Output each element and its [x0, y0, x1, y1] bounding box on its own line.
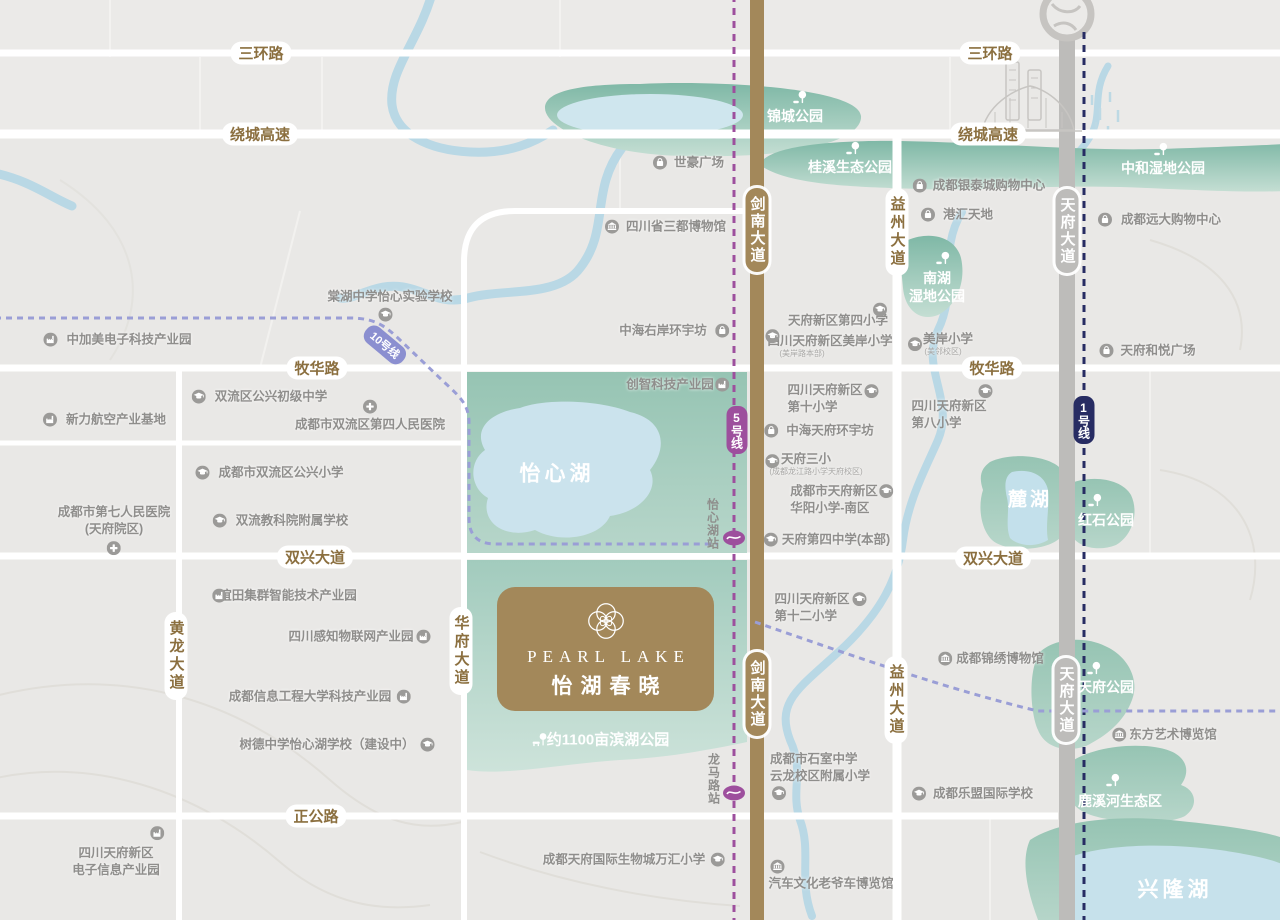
pearl-lake-flower-icon	[583, 598, 629, 644]
metro-station-label: 龙马路站	[706, 753, 723, 805]
project-logo-card: PEARL LAKE 怡湖春晓	[497, 587, 714, 711]
metro-logo-icon	[723, 785, 746, 801]
metro-line-badge: 5号线	[727, 406, 748, 454]
location-map: 锦城公园桂溪生态公园中和湿地公园南湖湿地公园红石公园天府公园鹿溪河生态区约110…	[0, 0, 1280, 920]
metro-station-marker	[723, 785, 746, 801]
metro-station-label: 怡心湖站	[705, 498, 722, 550]
project-name-cn: 怡湖春晓	[552, 670, 668, 700]
project-name-en: PEARL LAKE	[527, 647, 690, 667]
metro-labels-layer: 5号线1号线10号线怡心湖站龙马路站	[0, 0, 1280, 920]
metro-line-badge: 1号线	[1074, 396, 1095, 444]
metro-station-marker	[723, 530, 746, 546]
metro-line-badge: 10号线	[360, 322, 410, 368]
metro-logo-icon	[723, 530, 746, 546]
